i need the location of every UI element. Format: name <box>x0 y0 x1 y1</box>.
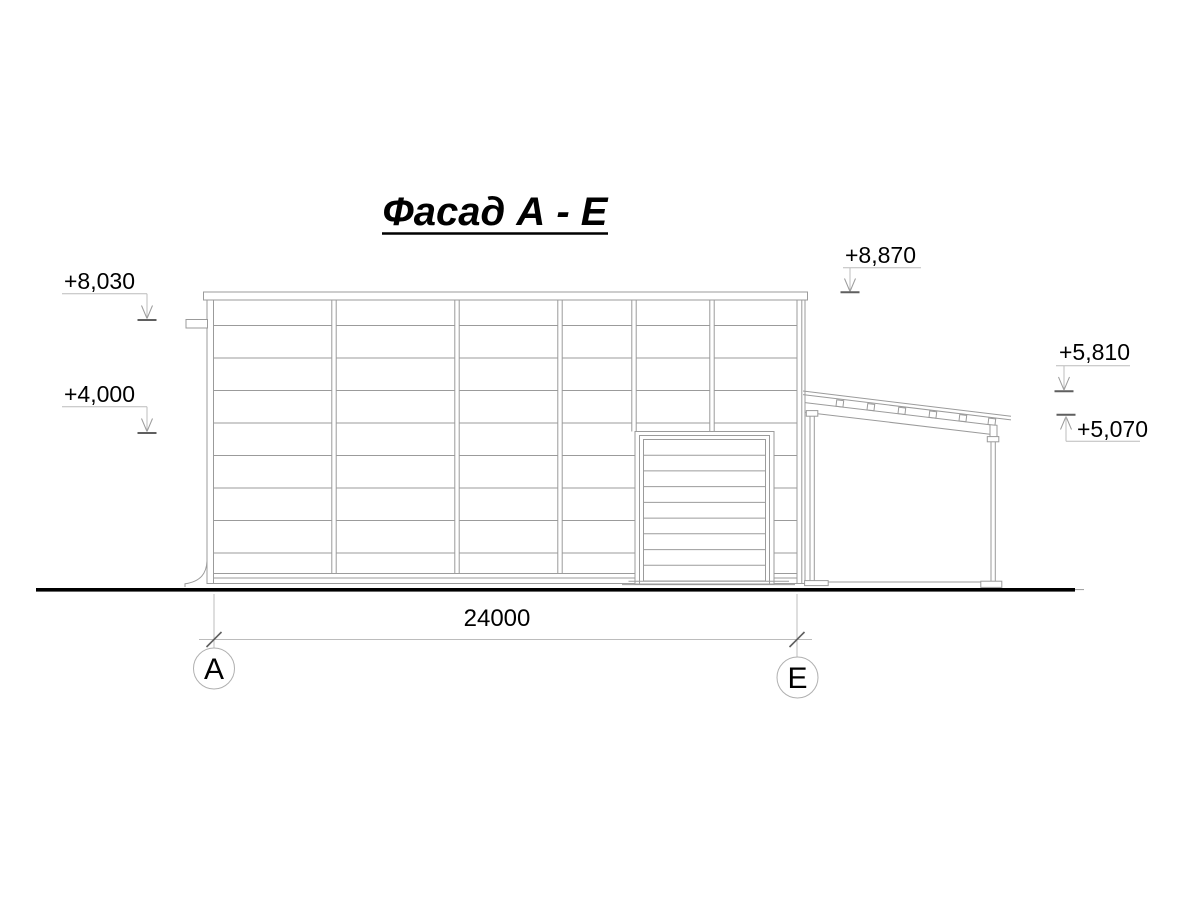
elevation-marker-annex-low: +5,070 <box>1057 415 1149 442</box>
dimension-string: 24000 <box>199 594 812 657</box>
elevation-marker-parapet-top: +8,870 <box>841 242 922 292</box>
annex-left-column <box>805 411 829 586</box>
elevation-marker-left-upper: +8,030 <box>62 268 157 320</box>
drawing-sheet: 24000 А Е +8,030 +4,000 +8,870 <box>0 0 1200 900</box>
ground <box>36 588 1084 592</box>
elevation-value: +8,870 <box>845 242 916 268</box>
axis-letter-e: Е <box>787 662 807 695</box>
axis-letter-a: А <box>204 653 224 686</box>
facade-elevation-drawing: 24000 А Е +8,030 +4,000 +8,870 <box>0 0 1200 900</box>
drawing-title: Фасад А - Е <box>382 190 609 234</box>
elevation-value: +8,030 <box>64 268 135 294</box>
title-text: Фасад А - Е <box>383 190 609 234</box>
annex-roof <box>803 391 1011 440</box>
garage-door <box>622 432 795 585</box>
right-column-capital <box>987 437 999 442</box>
elevation-marker-annex-high: +5,810 <box>1055 339 1131 391</box>
left-column-capital <box>806 411 818 417</box>
ground-line <box>36 588 1075 592</box>
right-column-base <box>981 581 1002 587</box>
door-outer-frame <box>635 432 774 585</box>
elevation-value: +5,810 <box>1059 339 1130 365</box>
left-column-base <box>805 581 829 586</box>
elevation-value: +5,070 <box>1077 416 1148 442</box>
elevation-marker-left-lower: +4,000 <box>62 381 157 433</box>
axis-bubbles: А Е <box>194 648 819 698</box>
annex-right-column <box>981 437 1002 588</box>
base-flare-left <box>185 561 207 587</box>
annex-canopy <box>803 391 1011 587</box>
scupper <box>186 320 208 329</box>
elevation-value: +4,000 <box>64 381 135 407</box>
dimension-value: 24000 <box>464 605 531 632</box>
roof-purlins <box>836 400 996 425</box>
parapet-coping <box>204 292 808 300</box>
